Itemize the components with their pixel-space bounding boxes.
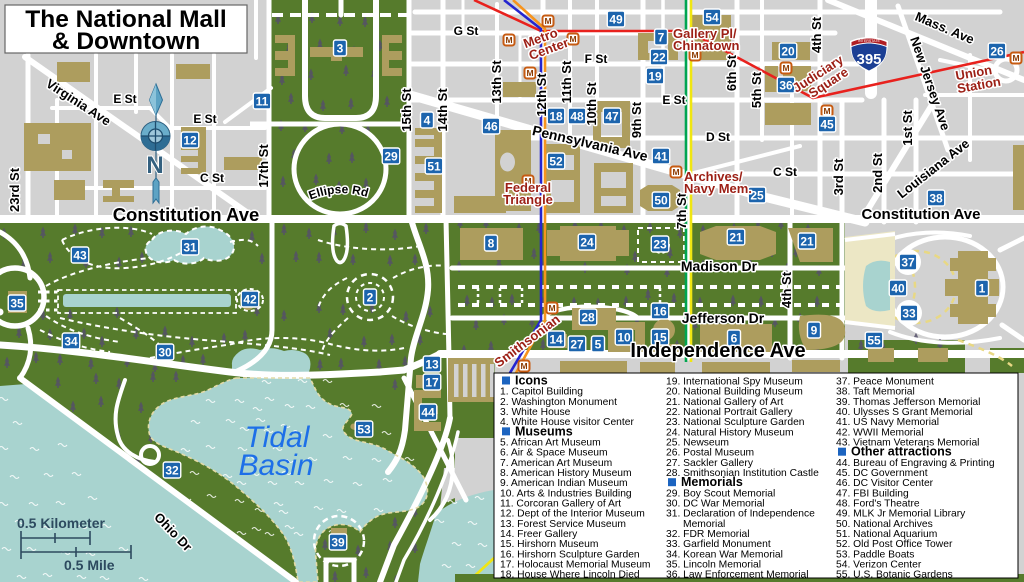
svg-text:24: 24 (580, 236, 594, 250)
svg-text:Triangle: Triangle (503, 192, 553, 207)
svg-text:34: 34 (64, 335, 78, 349)
svg-text:N: N (146, 152, 163, 179)
svg-text:55: 55 (867, 334, 881, 348)
svg-text:43: 43 (73, 249, 87, 263)
svg-text:0.5 Mile: 0.5 Mile (64, 557, 115, 573)
svg-text:G St: G St (454, 24, 479, 38)
svg-text:48: 48 (570, 110, 584, 124)
svg-text:40: 40 (891, 282, 905, 296)
svg-text:55. U.S. Botanic Gardens: 55. U.S. Botanic Gardens (836, 570, 953, 581)
svg-text:53: 53 (357, 423, 371, 437)
svg-text:41: 41 (654, 150, 668, 164)
svg-text:6th St: 6th St (724, 54, 739, 91)
svg-text:11: 11 (256, 95, 269, 109)
svg-text:INTERSTATE: INTERSTATE (858, 39, 880, 43)
svg-text:8: 8 (488, 237, 495, 251)
svg-text:Madison Dr: Madison Dr (681, 258, 758, 274)
svg-text:16: 16 (653, 305, 667, 319)
svg-text:10: 10 (617, 331, 631, 345)
svg-text:Jefferson Dr: Jefferson Dr (682, 310, 765, 326)
svg-text:C St: C St (200, 171, 224, 185)
svg-text:21: 21 (729, 231, 743, 245)
svg-text:Chinatown: Chinatown (673, 38, 739, 53)
svg-text:31: 31 (183, 241, 197, 255)
svg-text:36. Law Enforcement Memorial: 36. Law Enforcement Memorial (666, 570, 809, 581)
svg-text:30: 30 (158, 346, 172, 360)
svg-text:39: 39 (331, 536, 345, 550)
svg-text:7: 7 (658, 31, 665, 45)
svg-text:11th St: 11th St (559, 60, 574, 103)
svg-text:50: 50 (654, 194, 668, 208)
svg-text:15th St: 15th St (399, 88, 414, 132)
svg-text:2: 2 (367, 291, 374, 305)
svg-text:12: 12 (183, 134, 197, 148)
svg-text:45: 45 (820, 118, 834, 132)
svg-text:4th St: 4th St (809, 16, 824, 53)
svg-text:10th St: 10th St (584, 82, 599, 126)
svg-text:12th St: 12th St (534, 73, 549, 117)
svg-text:5th St: 5th St (749, 71, 764, 108)
svg-text:0.5 Kilometer: 0.5 Kilometer (17, 515, 105, 531)
svg-text:9: 9 (811, 324, 818, 338)
svg-text:42: 42 (243, 293, 257, 307)
svg-text:7th St: 7th St (674, 192, 689, 229)
svg-text:1: 1 (979, 282, 986, 296)
svg-text:18: 18 (549, 110, 563, 124)
svg-text:22: 22 (652, 51, 666, 65)
svg-text:Other attractions: Other attractions (851, 445, 952, 459)
svg-text:Icons: Icons (515, 374, 548, 388)
svg-text:2nd St: 2nd St (870, 152, 885, 192)
svg-text:25: 25 (750, 189, 764, 203)
svg-text:F St: F St (585, 52, 608, 66)
svg-text:Constitution Ave: Constitution Ave (113, 204, 260, 225)
svg-text:29: 29 (384, 150, 398, 164)
svg-text:35: 35 (10, 297, 24, 311)
svg-text:17: 17 (425, 376, 439, 390)
svg-text:17th St: 17th St (256, 144, 271, 188)
svg-text:21: 21 (800, 235, 814, 249)
svg-text:& Downtown: & Downtown (52, 28, 200, 55)
svg-text:19: 19 (648, 70, 662, 84)
svg-text:Basin: Basin (238, 449, 313, 482)
svg-text:51: 51 (427, 160, 441, 174)
svg-text:Navy Mem.: Navy Mem. (684, 181, 752, 196)
svg-text:38: 38 (929, 192, 943, 206)
svg-text:18. House Where Lincoln Died: 18. House Where Lincoln Died (500, 570, 640, 581)
svg-text:28: 28 (581, 311, 595, 325)
svg-text:20: 20 (781, 45, 795, 59)
svg-text:D St: D St (706, 130, 730, 144)
svg-text:C St: C St (773, 165, 797, 179)
svg-text:14th St: 14th St (435, 88, 450, 132)
svg-text:27: 27 (570, 338, 584, 352)
svg-text:46: 46 (484, 120, 498, 134)
svg-text:E St: E St (113, 92, 136, 106)
svg-text:52: 52 (549, 155, 563, 169)
svg-text:Independence Ave: Independence Ave (630, 340, 805, 362)
svg-text:14: 14 (549, 333, 563, 347)
svg-text:13th St: 13th St (489, 60, 504, 104)
svg-text:26: 26 (990, 45, 1004, 59)
svg-text:3: 3 (337, 42, 344, 56)
svg-text:47: 47 (605, 110, 619, 124)
svg-text:54: 54 (705, 11, 719, 25)
svg-text:13: 13 (425, 358, 439, 372)
svg-text:Constitution Ave: Constitution Ave (862, 206, 981, 223)
svg-text:37: 37 (901, 256, 915, 270)
svg-text:E St: E St (193, 112, 216, 126)
svg-text:23rd St: 23rd St (7, 167, 22, 212)
svg-text:4th St: 4th St (779, 271, 794, 308)
svg-text:33: 33 (902, 307, 916, 321)
svg-text:44: 44 (421, 406, 435, 420)
svg-text:5: 5 (595, 338, 602, 352)
svg-text:E St: E St (662, 93, 685, 107)
svg-text:Memorials: Memorials (681, 475, 743, 489)
svg-text:3rd St: 3rd St (831, 158, 846, 196)
svg-text:32: 32 (165, 464, 179, 478)
svg-text:23: 23 (653, 238, 667, 252)
svg-text:Museums: Museums (515, 424, 573, 438)
svg-text:9th St: 9th St (629, 101, 644, 138)
svg-text:395: 395 (856, 51, 881, 68)
svg-text:49: 49 (609, 13, 623, 27)
svg-text:1st St: 1st St (900, 110, 915, 146)
svg-text:4: 4 (424, 114, 431, 128)
